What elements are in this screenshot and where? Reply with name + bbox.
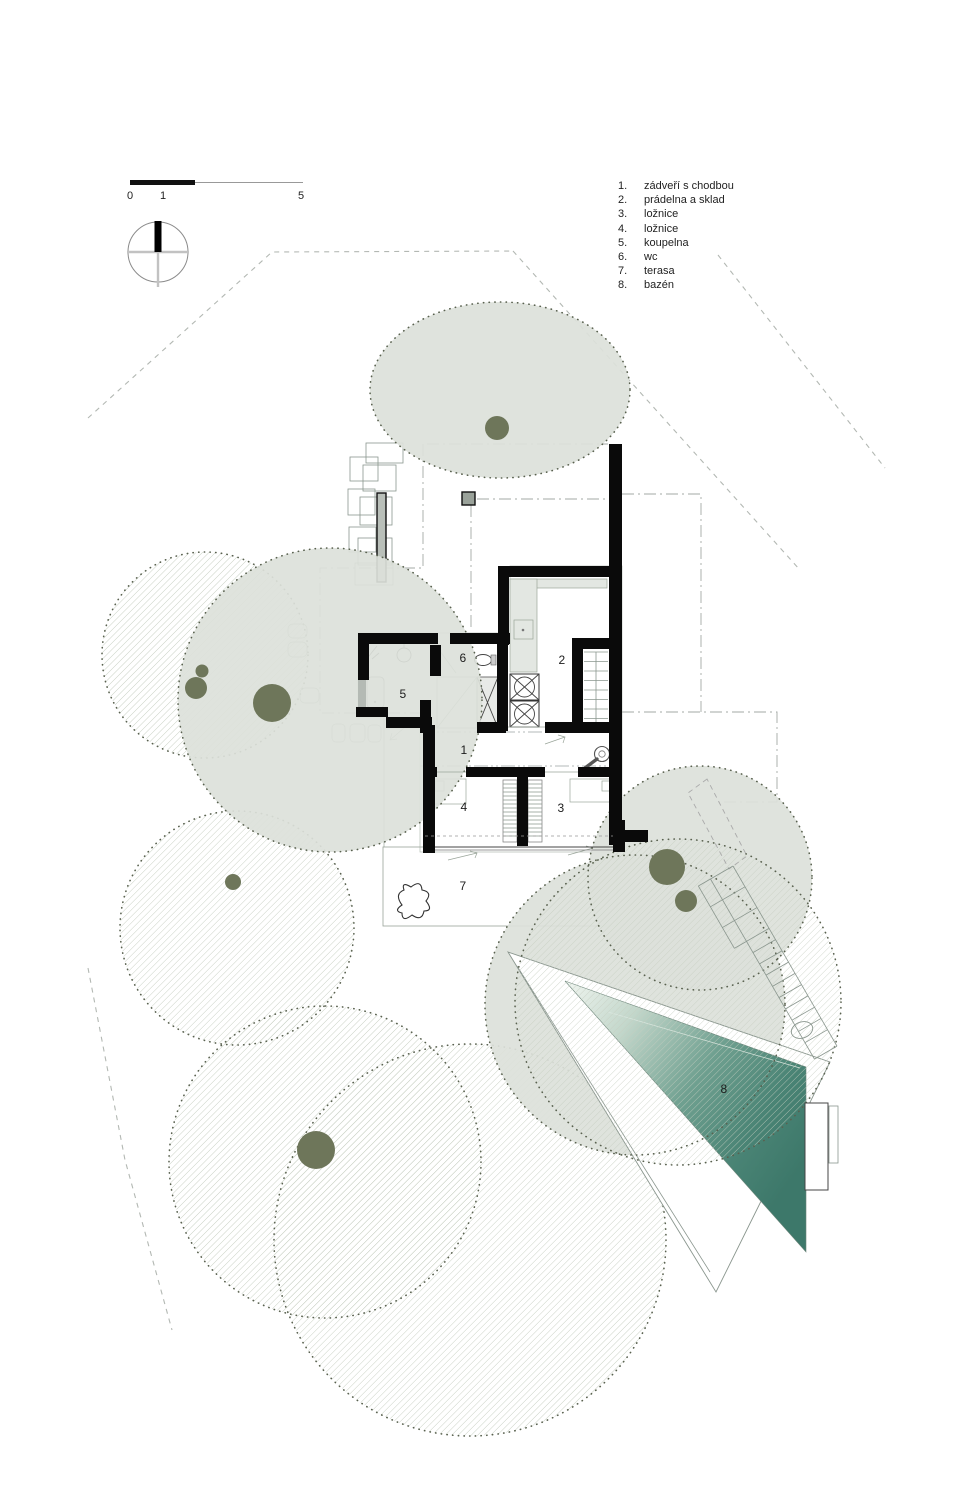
room-label-8: 8 [721,1082,728,1096]
legend: 1.zádveří s chodbou2.prádelna a sklad3.l… [618,179,734,293]
legend-number: 5. [618,236,644,250]
terrace-sculpture [398,884,430,919]
scale-bar [130,180,303,185]
legend-item-4: 4.ložnice [618,222,734,236]
legend-label: ložnice [644,207,678,221]
north-compass [127,221,189,287]
legend-item-5: 5.koupelna [618,236,734,250]
north-arrow-icon [155,221,162,252]
washer-dryer-stack [510,674,539,727]
room-label-5: 5 [400,687,407,701]
legend-label: zádveří s chodbou [644,179,734,193]
tree-canopy-solid [370,302,630,478]
legend-number: 8. [618,278,644,292]
legend-number: 3. [618,207,644,221]
legend-label: koupelna [644,236,689,250]
hatch-overlay-canopy [515,839,841,1165]
legend-label: ložnice [644,222,678,236]
legend-number: 6. [618,250,644,264]
legend-item-3: 3.ložnice [618,207,734,221]
plan-drawing [0,0,971,1500]
legend-item-2: 2.prádelna a sklad [618,193,734,207]
scale-label-1: 1 [160,190,166,202]
legend-label: wc [644,250,657,264]
room-label-4: 4 [461,800,468,814]
legend-label: prádelna a sklad [644,193,725,207]
scale-label-5: 5 [298,190,304,202]
legend-number: 4. [618,222,644,236]
room-label-6: 6 [460,651,467,665]
pergola-column [462,492,475,505]
legend-number: 1. [618,179,644,193]
legend-label: bazén [644,278,674,292]
legend-number: 2. [618,193,644,207]
site-plan-canvas: 1.zádveří s chodbou2.prádelna a sklad3.l… [0,0,971,1500]
legend-item-6: 6.wc [618,250,734,264]
scale-label-0: 0 [127,190,133,202]
legend-label: terasa [644,264,675,278]
room-label-7: 7 [460,879,467,893]
tree-canopy-solid [178,548,482,852]
room-label-2: 2 [559,653,566,667]
legend-item-7: 7.terasa [618,264,734,278]
pool-bench [805,1103,838,1190]
legend-item-8: 8.bazén [618,278,734,292]
legend-item-1: 1.zádveří s chodbou [618,179,734,193]
legend-number: 7. [618,264,644,278]
room-label-3: 3 [558,801,565,815]
room-label-1: 1 [461,743,468,757]
